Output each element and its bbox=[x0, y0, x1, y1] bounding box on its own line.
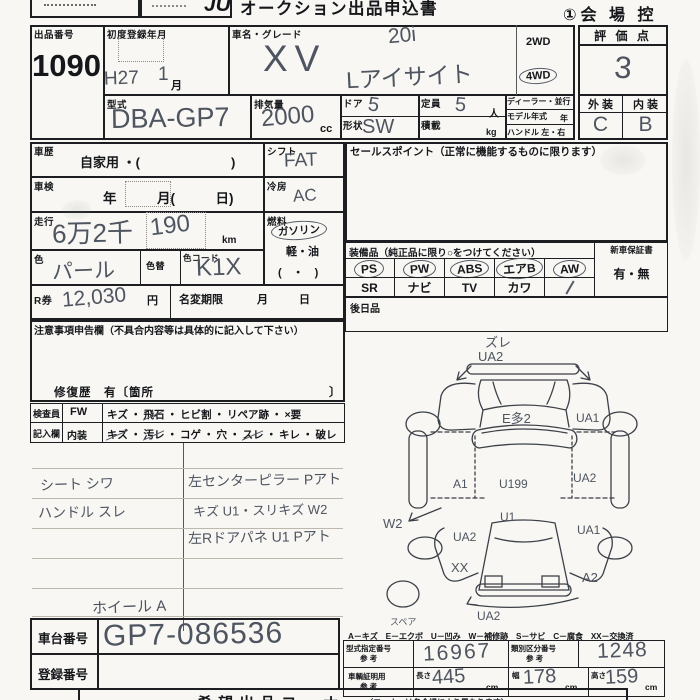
notice-header: 注意事項申告欄（不具合内容等は具体的に記入して下さい） bbox=[34, 322, 304, 337]
equipment-cell: ナビ bbox=[395, 278, 445, 297]
equipment-cell: AW bbox=[545, 259, 594, 278]
diagram-label-front-right: UA1 bbox=[576, 411, 600, 425]
equipment-cell: PW bbox=[395, 259, 445, 278]
diagram-label-rear-window: U1 bbox=[500, 510, 516, 524]
history-value: 自家用 ・( ) bbox=[80, 152, 235, 171]
equipment-row-2: SR ナビ TV カワ bbox=[345, 278, 594, 297]
fw-label: FW bbox=[70, 406, 87, 418]
handle-label: ハンドル 左・右 bbox=[507, 127, 565, 138]
interior-item: 破レ bbox=[316, 429, 337, 441]
capacity-value: 5 bbox=[454, 94, 467, 118]
name-change-label: 名変期限 bbox=[179, 291, 223, 307]
interior-item: コゲ bbox=[180, 429, 201, 441]
ac-label: 冷房 bbox=[267, 179, 287, 193]
note-center-pillar: 左センターピラー Pアト bbox=[188, 469, 342, 492]
equipment-cell: カワ bbox=[495, 278, 545, 297]
grid-line bbox=[30, 653, 340, 655]
note-wheel: ホイール A bbox=[92, 595, 167, 619]
grade-sub-value: Lアイサイト bbox=[345, 55, 473, 96]
stamp-marks bbox=[152, 5, 186, 7]
first-registration-era: H27 bbox=[104, 67, 140, 90]
year-suffix: 年 bbox=[560, 113, 568, 124]
grid-line bbox=[418, 95, 420, 140]
grid-line bbox=[505, 124, 575, 125]
scan-smudge bbox=[600, 145, 646, 175]
equipment-cell: TV bbox=[445, 278, 495, 297]
recycle-ticket-label: R券 bbox=[34, 292, 52, 307]
inspection-label: 車検 bbox=[34, 179, 54, 193]
diagram-label-xx: XX bbox=[451, 560, 469, 575]
car-name-value: XV bbox=[263, 38, 326, 80]
grid-line bbox=[228, 25, 230, 95]
equipment-cell: SR bbox=[345, 278, 395, 297]
model-year-label: モデル年式 bbox=[507, 111, 547, 122]
persons-unit: 人 bbox=[489, 105, 499, 120]
fw-item: リペア跡 bbox=[227, 409, 269, 421]
grid-line bbox=[340, 95, 342, 140]
interior-grade: B bbox=[623, 113, 668, 137]
month-label: 月 bbox=[257, 291, 268, 307]
equipment-cell: PS bbox=[345, 259, 395, 278]
interior-row-label: 内装 bbox=[67, 427, 87, 442]
corner-box: 希望出品コーナー （コーナーは各会場により異なります） bbox=[78, 688, 628, 700]
grid-line bbox=[97, 618, 99, 690]
lot-number: 1090 bbox=[31, 48, 102, 84]
equipment-row-1: PS PW ABS エアB AW bbox=[345, 259, 594, 278]
diagram-label-w2: W2 bbox=[383, 516, 403, 531]
day-label: 日 bbox=[299, 291, 310, 307]
ju-logo: JU bbox=[204, 0, 231, 17]
km-unit: km bbox=[222, 235, 236, 246]
diagram-label-mid-left: A1 bbox=[453, 477, 468, 491]
displacement-value: 2000 bbox=[260, 101, 316, 134]
grid-line bbox=[30, 176, 345, 178]
later-items-label: 後日品 bbox=[350, 300, 380, 315]
exterior-grade: C bbox=[578, 113, 623, 137]
color-label: 色 bbox=[34, 252, 44, 266]
interior-item: 穴 bbox=[217, 429, 228, 441]
height-value: 159 bbox=[604, 665, 639, 690]
ac-value: AC bbox=[292, 185, 317, 207]
registration-number-label: 登録番号 bbox=[38, 664, 88, 683]
equipment-header: 装備品（純正品に限り○をつけてください） bbox=[349, 245, 541, 259]
width-label: 幅 bbox=[512, 670, 520, 681]
grid-line bbox=[250, 95, 252, 140]
width-value: 178 bbox=[522, 665, 557, 690]
score-value: 3 bbox=[577, 47, 669, 89]
diagram-label-rear-right: UA1 bbox=[577, 523, 601, 537]
reference-label: 参 考 bbox=[360, 653, 377, 664]
chassis-number-label: 車台番号 bbox=[38, 628, 88, 647]
scan-smudge bbox=[672, 60, 700, 260]
month-suffix: 月 bbox=[171, 77, 182, 93]
capacity-label: 定員 bbox=[421, 96, 441, 110]
body-shape-label: 形状 bbox=[343, 118, 363, 132]
equipment-cell: エアB bbox=[495, 259, 545, 278]
cc-unit: cc bbox=[320, 123, 332, 135]
chassis-number-value: GP7-086536 bbox=[103, 616, 284, 653]
venue-copy-label: ①会 場 控 bbox=[563, 1, 657, 25]
drive-2wd-label: 2WD bbox=[526, 36, 550, 48]
interior-damage-items: キズ・汚レ・コゲ・穴・スレ・キレ・破レ bbox=[107, 427, 337, 442]
equipment-cell bbox=[545, 278, 594, 297]
note-handle: ハンドル スレ bbox=[38, 501, 126, 523]
grade-top-value: 20i bbox=[387, 23, 417, 49]
interior-item: 汚レ bbox=[144, 427, 165, 442]
later-items-box bbox=[345, 297, 668, 332]
grid-line bbox=[180, 250, 181, 285]
yen-unit: 円 bbox=[147, 292, 158, 308]
damage-diagram: ズレ UA2 E多2 UA1 A1 U199 UA2 W2 UA2 U1 UA1… bbox=[345, 332, 668, 630]
inspection-value: 年 月( 日) bbox=[103, 187, 234, 207]
top-partial-box-1 bbox=[30, 0, 140, 18]
repair-history-label: 修復歴 有〔箇所 bbox=[54, 384, 154, 400]
diagram-label-zure: ズレ bbox=[485, 335, 511, 350]
notes-divider bbox=[183, 443, 184, 631]
note-line bbox=[32, 558, 343, 559]
mileage-value-rest: 190 bbox=[148, 210, 191, 243]
fw-item: キズ bbox=[107, 409, 128, 421]
exterior-label: 外 装 bbox=[578, 96, 623, 112]
diagram-label-spare: スペア bbox=[390, 617, 416, 627]
warranty-label: 新車保証書 bbox=[595, 244, 668, 256]
dotted-subbox bbox=[118, 38, 164, 62]
kg-unit: kg bbox=[486, 127, 497, 137]
fuel-diesel-label: 軽・油 bbox=[286, 243, 319, 259]
model-code-value: DBA-GP7 bbox=[111, 102, 230, 135]
diagram-label-mid-right: UA2 bbox=[573, 471, 597, 485]
note-line bbox=[32, 616, 343, 617]
interior-label: 内 装 bbox=[623, 96, 668, 112]
note-rear-door: 左Rドアパネ U1 Pアト bbox=[188, 526, 331, 548]
shift-value: FAT bbox=[284, 149, 318, 172]
repair-history-close: 〕 bbox=[329, 384, 341, 400]
color-value: パール bbox=[51, 254, 115, 286]
grid-line bbox=[170, 285, 171, 320]
diagram-label-bumper: UA2 bbox=[477, 609, 501, 623]
fw-item: ×要 bbox=[285, 409, 302, 421]
grid-line bbox=[263, 142, 265, 285]
class-number-value: 1248 bbox=[597, 638, 649, 664]
note-scratch: キズ U1・スリキズ W2 bbox=[193, 499, 328, 520]
grid-line bbox=[140, 250, 141, 285]
fw-item: ヒビ割 bbox=[180, 409, 212, 421]
diagram-label-hood: E多2 bbox=[502, 411, 531, 426]
length-label: 長さ bbox=[416, 670, 431, 681]
form-title: オークション出品申込書 bbox=[240, 0, 438, 19]
diagram-label-roof: UA2 bbox=[478, 349, 503, 364]
load-label: 積載 bbox=[421, 118, 441, 132]
history-label: 車歴 bbox=[34, 144, 54, 158]
grid-line bbox=[578, 640, 579, 668]
grid-line bbox=[505, 109, 575, 110]
grid-line bbox=[516, 25, 517, 95]
diagram-label-rear-left: UA2 bbox=[453, 530, 477, 544]
fw-item: 飛石 bbox=[144, 407, 165, 422]
inspector-label-1: 検査員 bbox=[33, 407, 60, 420]
score-label: 評 価 点 bbox=[578, 27, 668, 44]
color-code-value: K1X bbox=[196, 253, 242, 283]
interior-item: スレ bbox=[243, 427, 264, 442]
warranty-value: 有・無 bbox=[595, 265, 668, 282]
fw-damage-items: キズ・飛石・ヒビ割・リペア跡・×要 bbox=[107, 407, 301, 422]
cm-unit: cm bbox=[645, 682, 657, 692]
corner-note: （コーナーは各会場により異なります） bbox=[365, 697, 509, 700]
interior-item: キズ bbox=[107, 427, 128, 442]
fuel-paren: ( ・ ) bbox=[278, 264, 318, 280]
stamp-marks bbox=[44, 4, 96, 6]
note-line bbox=[32, 588, 343, 589]
first-registration-month: 1 bbox=[158, 64, 169, 86]
sales-point-header: セールスポイント（正常に機能するものに限ります） bbox=[350, 144, 602, 159]
doors-label: ドア bbox=[343, 96, 363, 110]
note-seat: シート シワ bbox=[40, 473, 115, 496]
mileage-value-man: 6万2千 bbox=[52, 212, 134, 250]
color-change-label: 色替 bbox=[146, 259, 165, 272]
length-value: 445 bbox=[431, 665, 466, 690]
grid-line bbox=[578, 44, 668, 46]
grid-line bbox=[30, 422, 345, 423]
corner-label: 希望出品コーナー bbox=[197, 692, 365, 700]
inspector-label-2: 記入欄 bbox=[33, 427, 60, 440]
interior-item: キレ bbox=[279, 429, 300, 441]
diagram-label-a2: A2 bbox=[582, 570, 598, 585]
auction-sheet: JU オークション出品申込書 ①会 場 控 出品番号 1090 初度登録年月 H… bbox=[0, 0, 700, 700]
body-shape-value: SW bbox=[362, 116, 394, 139]
equipment-cell: ABS bbox=[445, 259, 495, 278]
type-designation-value: 16967 bbox=[422, 639, 492, 667]
lot-number-label: 出品番号 bbox=[34, 27, 74, 41]
diagram-label-mid-center: U199 bbox=[499, 477, 528, 491]
scan-smudge bbox=[62, 200, 92, 220]
dealer-parallel-label: ディーラー・並行 bbox=[507, 96, 570, 107]
reference-label: 参 考 bbox=[526, 653, 543, 664]
